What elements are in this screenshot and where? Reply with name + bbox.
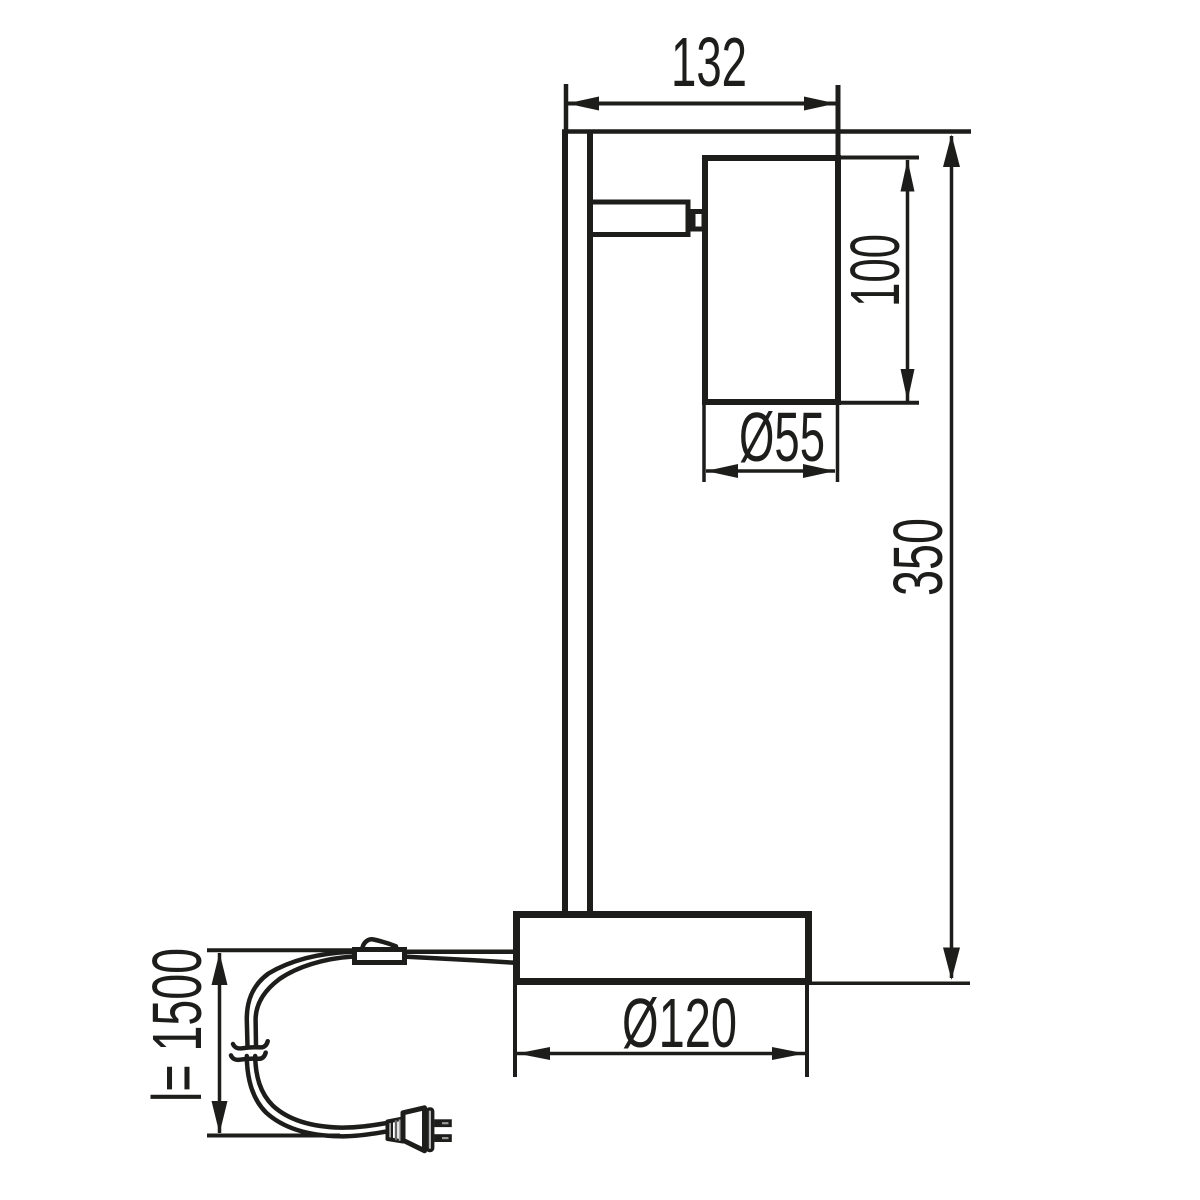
svg-text:l= 1500: l= 1500 <box>138 948 216 1102</box>
svg-text:100: 100 <box>836 234 914 307</box>
svg-text:Ø120: Ø120 <box>622 984 737 1062</box>
svg-text:350: 350 <box>879 518 957 596</box>
svg-text:Ø55: Ø55 <box>739 398 825 476</box>
svg-text:132: 132 <box>671 23 747 101</box>
